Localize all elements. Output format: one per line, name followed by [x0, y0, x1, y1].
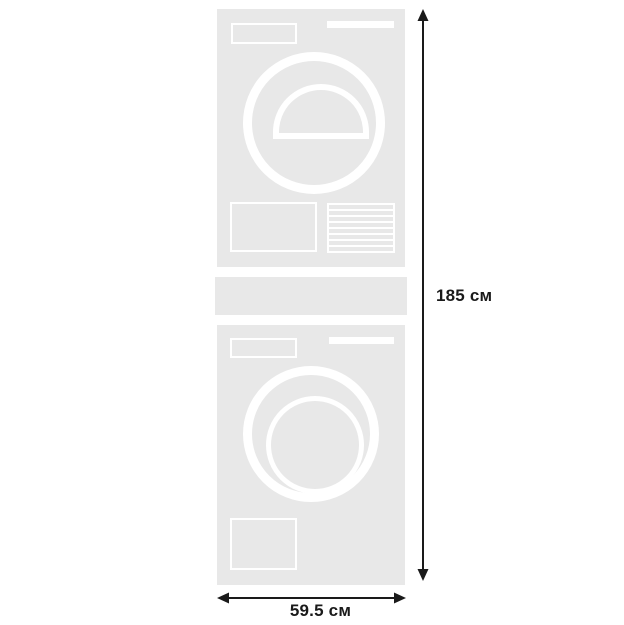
- dryer-door-scoop: [273, 84, 369, 139]
- stacking-kit-band: [215, 277, 407, 315]
- dimension-diagram: 185 см 59.5 см: [0, 0, 624, 625]
- height-dimension-label: 185 см: [436, 286, 492, 306]
- width-dimension-label: 59.5 см: [238, 601, 403, 621]
- arrow-left-icon: [217, 593, 229, 604]
- dryer-display-panel: [231, 23, 297, 44]
- dryer-door: [243, 52, 385, 194]
- washer-unit: [217, 325, 405, 585]
- washer-inner-drum: [266, 396, 364, 494]
- dryer-door-handle: [327, 21, 394, 28]
- arrow-down-icon: [418, 569, 429, 581]
- arrow-up-icon: [418, 9, 429, 21]
- washer-display-panel: [230, 338, 297, 358]
- height-dimension-arrow: [418, 9, 429, 581]
- dryer-condenser-panel: [230, 202, 317, 252]
- washer-door-handle: [329, 337, 394, 344]
- dryer-unit: [217, 9, 405, 267]
- washer-service-panel: [230, 518, 297, 570]
- washer-door: [243, 366, 379, 502]
- dryer-vent-grille: [327, 203, 395, 253]
